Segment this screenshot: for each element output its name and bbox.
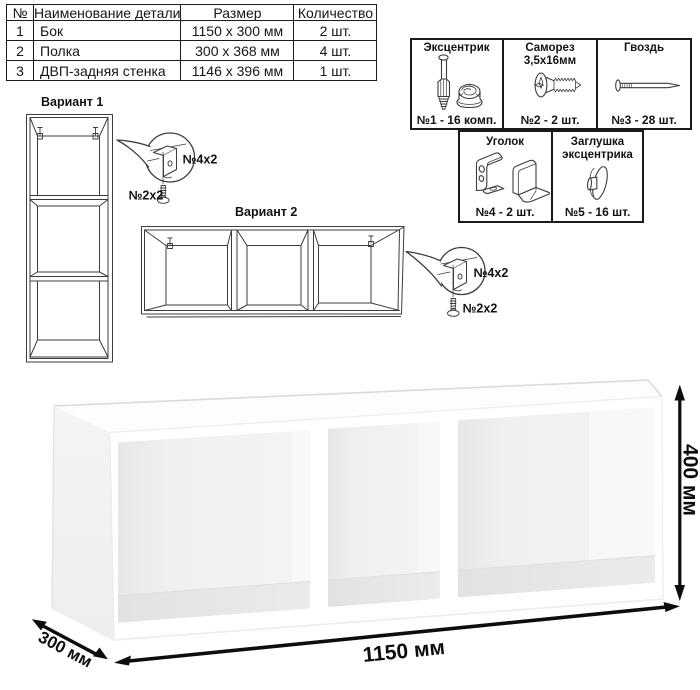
svg-text:Вариант 1: Вариант 1	[41, 95, 103, 109]
svg-text:№2х2: №2х2	[129, 189, 164, 203]
svg-text:№2х2: №2х2	[463, 302, 498, 316]
svg-text:300 мм: 300 мм	[35, 627, 95, 671]
svg-text:Вариант 2: Вариант 2	[235, 205, 297, 219]
svg-text:№4х2: №4х2	[183, 153, 218, 167]
svg-text:№4х2: №4х2	[474, 266, 509, 280]
svg-text:400 мм: 400 мм	[679, 444, 700, 516]
svg-text:1150 мм: 1150 мм	[362, 636, 446, 667]
